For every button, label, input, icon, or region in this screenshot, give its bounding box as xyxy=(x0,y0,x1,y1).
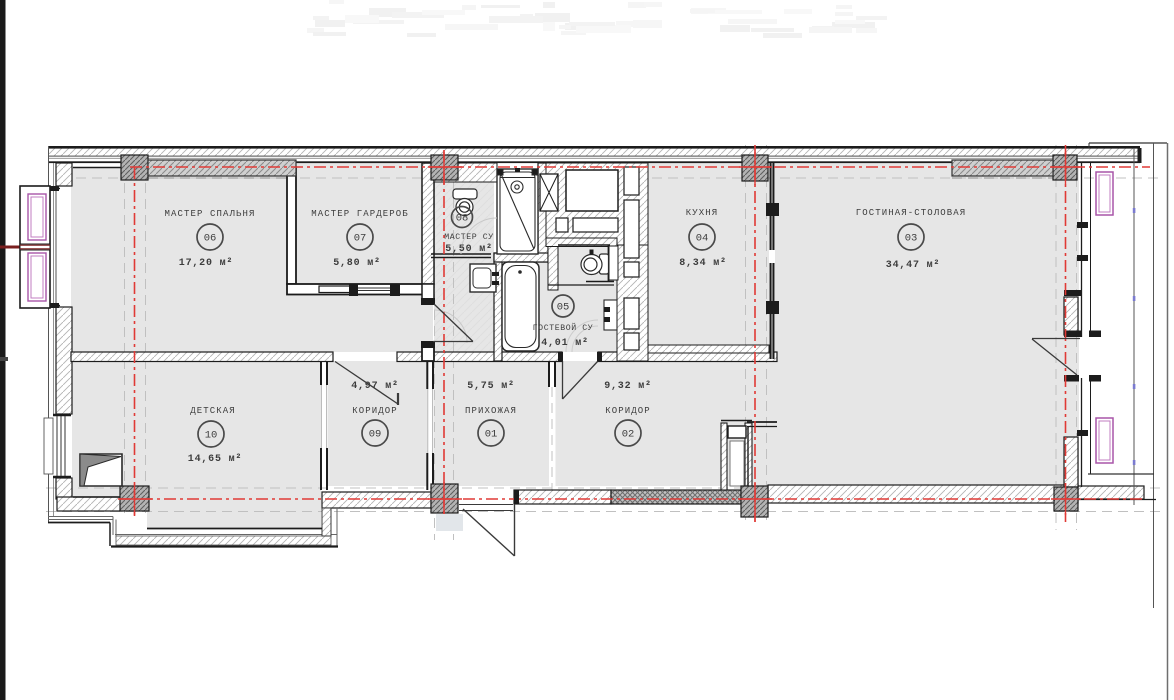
svg-text:14,65 м²: 14,65 м² xyxy=(188,454,242,465)
svg-text:КОРИДОР: КОРИДОР xyxy=(605,406,651,416)
svg-text:4,97 м²: 4,97 м² xyxy=(351,381,399,392)
svg-text:5,50 м²: 5,50 м² xyxy=(445,244,493,255)
svg-text:КОРИДОР: КОРИДОР xyxy=(352,406,398,416)
svg-text:МАСТЕР СПАЛЬНЯ: МАСТЕР СПАЛЬНЯ xyxy=(164,209,255,219)
svg-text:4,01 м²: 4,01 м² xyxy=(541,338,589,349)
svg-text:8,34 м²: 8,34 м² xyxy=(679,258,727,269)
svg-text:02: 02 xyxy=(622,429,635,441)
svg-text:ПРИХОЖАЯ: ПРИХОЖАЯ xyxy=(465,406,517,416)
svg-text:01: 01 xyxy=(485,429,498,441)
svg-text:07: 07 xyxy=(354,233,367,245)
svg-text:34,47 м²: 34,47 м² xyxy=(886,260,940,271)
svg-text:04: 04 xyxy=(696,233,709,245)
svg-text:ГОСТЕВОЙ СУ: ГОСТЕВОЙ СУ xyxy=(533,322,594,333)
svg-text:5,75 м²: 5,75 м² xyxy=(467,381,515,392)
svg-text:09: 09 xyxy=(369,429,382,441)
svg-text:9,32 м²: 9,32 м² xyxy=(604,381,652,392)
svg-text:06: 06 xyxy=(204,233,217,245)
svg-text:08: 08 xyxy=(456,212,469,224)
svg-text:КУХНЯ: КУХНЯ xyxy=(686,208,719,218)
svg-text:МАСТЕР СУ: МАСТЕР СУ xyxy=(444,233,494,242)
svg-text:ДЕТСКАЯ: ДЕТСКАЯ xyxy=(190,406,236,416)
svg-text:10: 10 xyxy=(205,430,218,442)
svg-text:МАСТЕР ГАРДЕРОБ: МАСТЕР ГАРДЕРОБ xyxy=(311,209,409,219)
svg-text:03: 03 xyxy=(905,233,918,245)
svg-text:ГОСТИНАЯ-СТОЛОВАЯ: ГОСТИНАЯ-СТОЛОВАЯ xyxy=(856,208,967,218)
svg-text:17,20 м²: 17,20 м² xyxy=(179,258,233,269)
svg-text:5,80 м²: 5,80 м² xyxy=(333,258,381,269)
svg-text:05: 05 xyxy=(557,302,570,314)
